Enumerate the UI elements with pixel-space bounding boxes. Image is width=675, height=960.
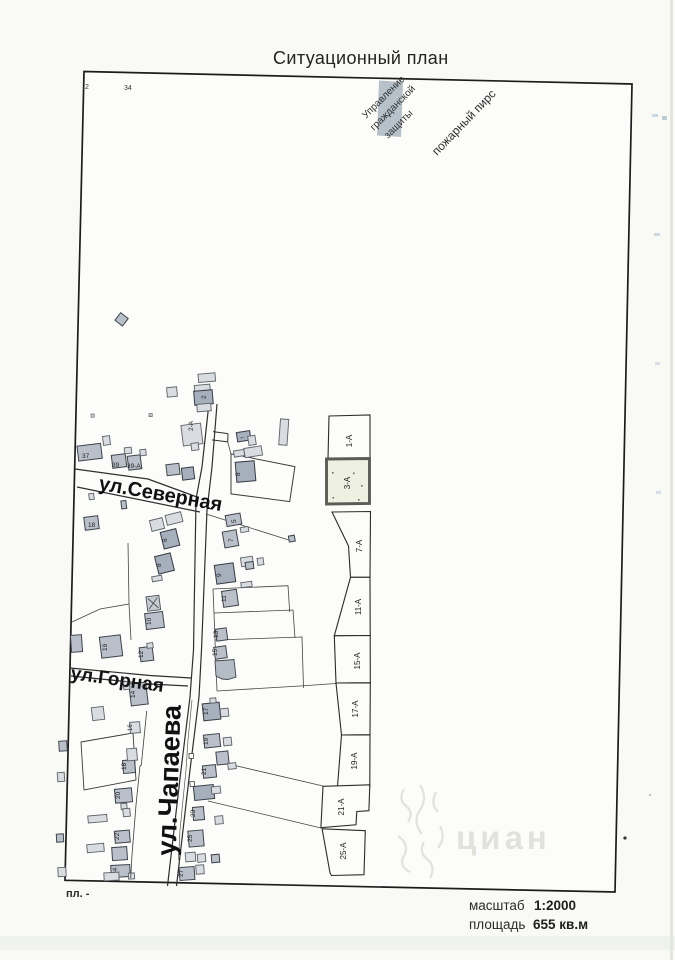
svg-text:3-А: 3-А <box>343 476 352 489</box>
svg-text:2: 2 <box>201 395 208 399</box>
svg-text:пл. -: пл. - <box>66 888 90 900</box>
svg-text:17-А: 17-А <box>351 700 360 718</box>
svg-text:16: 16 <box>128 724 134 731</box>
svg-text:2-А: 2-А <box>188 420 195 431</box>
svg-text:11-А: 11-А <box>354 598 363 615</box>
svg-text:20: 20 <box>115 791 122 799</box>
svg-text:15-А: 15-А <box>353 652 362 670</box>
svg-text:19: 19 <box>102 643 109 651</box>
svg-text:8: 8 <box>156 563 163 567</box>
svg-text:площадь: площадь <box>469 917 525 932</box>
svg-text:9: 9 <box>216 573 223 577</box>
svg-text:←: ← <box>239 434 246 441</box>
svg-text:27: 27 <box>178 869 185 877</box>
svg-text:1-А: 1-А <box>345 434 354 447</box>
svg-text:6: 6 <box>162 538 169 542</box>
svg-text:1:2000: 1:2000 <box>534 898 576 913</box>
svg-text:37: 37 <box>82 453 90 460</box>
svg-text:12: 12 <box>138 650 145 658</box>
svg-text:21: 21 <box>201 767 208 775</box>
svg-text:34: 34 <box>124 85 132 92</box>
svg-text:5: 5 <box>231 519 238 523</box>
svg-text:циан: циан <box>456 819 551 856</box>
svg-text:18: 18 <box>88 522 96 529</box>
svg-text:25: 25 <box>187 834 194 842</box>
svg-text:19: 19 <box>203 737 210 745</box>
svg-text:22: 22 <box>114 832 121 840</box>
svg-text:17: 17 <box>203 707 210 715</box>
svg-text:39: 39 <box>112 462 120 469</box>
svg-text:11: 11 <box>221 595 228 602</box>
svg-text:18: 18 <box>121 762 128 770</box>
svg-text:7-А: 7-А <box>355 539 364 552</box>
svg-text:19-А: 19-А <box>350 752 359 770</box>
svg-text:10: 10 <box>146 617 153 625</box>
svg-text:39-А: 39-А <box>127 463 141 470</box>
svg-text:ул.Чапаева: ул.Чапаева <box>152 703 187 856</box>
svg-text:23: 23 <box>190 809 197 817</box>
svg-text:21-А: 21-А <box>337 798 346 816</box>
svg-text:Ситуационный план: Ситуационный план <box>273 48 449 68</box>
svg-text:15: 15 <box>212 648 219 656</box>
svg-text:7: 7 <box>228 538 235 542</box>
svg-text:25-А: 25-А <box>339 842 348 860</box>
svg-text:8: 8 <box>235 472 242 476</box>
svg-text:13: 13 <box>213 630 220 638</box>
svg-text:масштаб: масштаб <box>469 898 525 913</box>
svg-text:2: 2 <box>85 84 89 91</box>
svg-text:655 кв.м: 655 кв.м <box>533 917 588 932</box>
